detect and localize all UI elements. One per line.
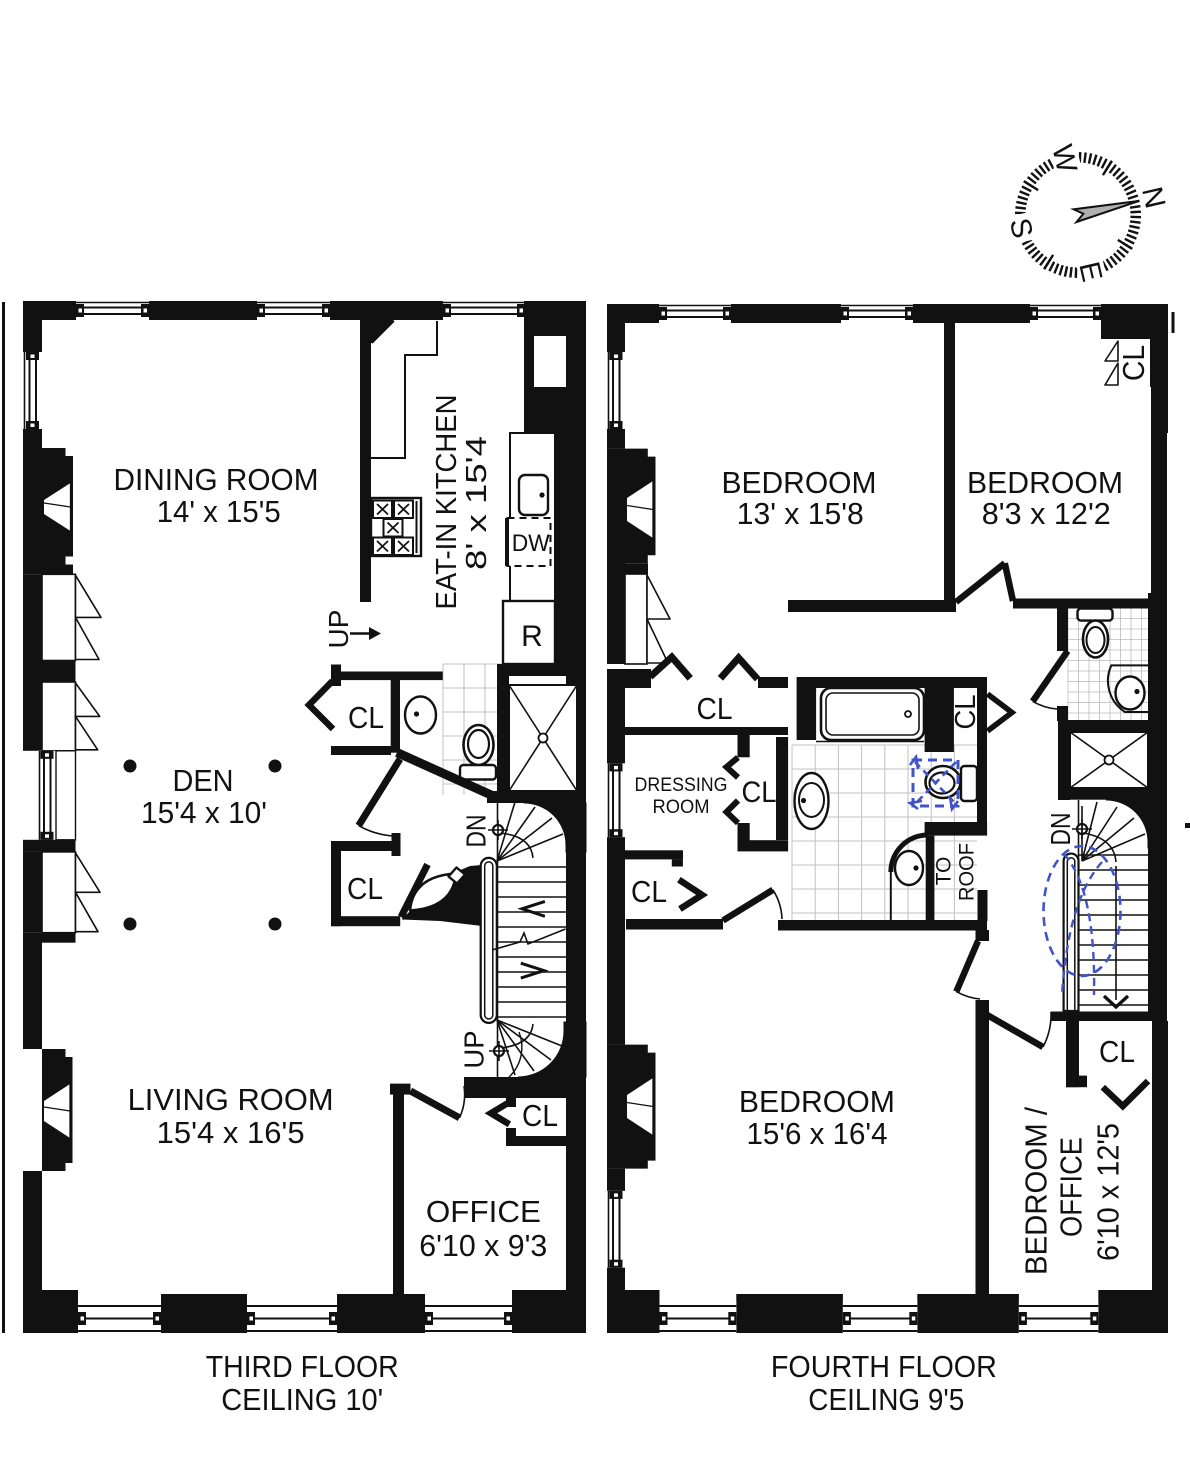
- svg-text:THIRD FLOOR: THIRD FLOOR: [206, 1349, 399, 1384]
- svg-text:BEDROOM: BEDROOM: [722, 465, 877, 500]
- svg-text:BEDROOM /: BEDROOM /: [1019, 1107, 1054, 1275]
- svg-text:OFFICE: OFFICE: [1053, 1137, 1088, 1237]
- svg-text:LIVING ROOM: LIVING ROOM: [128, 1082, 334, 1117]
- svg-text:15'6 x 16'4: 15'6 x 16'4: [747, 1116, 888, 1151]
- svg-text:DRESSING: DRESSING: [635, 775, 728, 796]
- svg-text:DN: DN: [1045, 813, 1076, 846]
- svg-text:BEDROOM: BEDROOM: [739, 1084, 895, 1119]
- svg-text:UP: UP: [323, 610, 354, 649]
- svg-text:FOURTH FLOOR: FOURTH FLOOR: [771, 1349, 997, 1384]
- svg-text:6'10 x 9'3: 6'10 x 9'3: [419, 1228, 547, 1263]
- svg-text:8'3 x 12'2: 8'3 x 12'2: [982, 496, 1111, 531]
- svg-text:ROOM: ROOM: [653, 797, 710, 818]
- svg-text:15'4 x 16'5: 15'4 x 16'5: [157, 1115, 305, 1150]
- svg-text:TO: TO: [933, 857, 956, 886]
- svg-text:CL: CL: [348, 700, 384, 735]
- svg-text:14' x 15'5: 14' x 15'5: [157, 494, 281, 529]
- svg-text:6'10 x 12'5: 6'10 x 12'5: [1091, 1123, 1126, 1261]
- svg-text:13' x 15'8: 13' x 15'8: [737, 496, 864, 531]
- svg-text:15'4 x 10': 15'4 x 10': [141, 795, 267, 830]
- svg-text:CEILING 10': CEILING 10': [221, 1382, 383, 1417]
- svg-text:CEILING 9'5: CEILING 9'5: [808, 1382, 964, 1417]
- svg-text:OFFICE: OFFICE: [426, 1194, 541, 1229]
- svg-text:CL: CL: [742, 776, 777, 809]
- svg-text:CL: CL: [522, 1098, 558, 1133]
- svg-text:UP: UP: [459, 1030, 490, 1068]
- svg-text:R: R: [521, 620, 543, 653]
- svg-text:CL: CL: [1116, 345, 1151, 381]
- svg-text:EAT-IN KITCHEN: EAT-IN KITCHEN: [431, 395, 463, 610]
- svg-text:8' x 15'4: 8' x 15'4: [461, 436, 493, 570]
- svg-text:CL: CL: [697, 691, 733, 726]
- svg-text:ROOF: ROOF: [956, 843, 979, 901]
- svg-text:CL: CL: [347, 871, 383, 906]
- svg-text:DN: DN: [460, 815, 491, 848]
- svg-text:CL: CL: [631, 874, 667, 909]
- svg-text:DEN: DEN: [173, 763, 234, 798]
- svg-text:BEDROOM: BEDROOM: [967, 465, 1123, 500]
- svg-text:DINING ROOM: DINING ROOM: [114, 462, 319, 497]
- svg-text:DW: DW: [512, 530, 550, 557]
- svg-text:CL: CL: [1099, 1034, 1135, 1069]
